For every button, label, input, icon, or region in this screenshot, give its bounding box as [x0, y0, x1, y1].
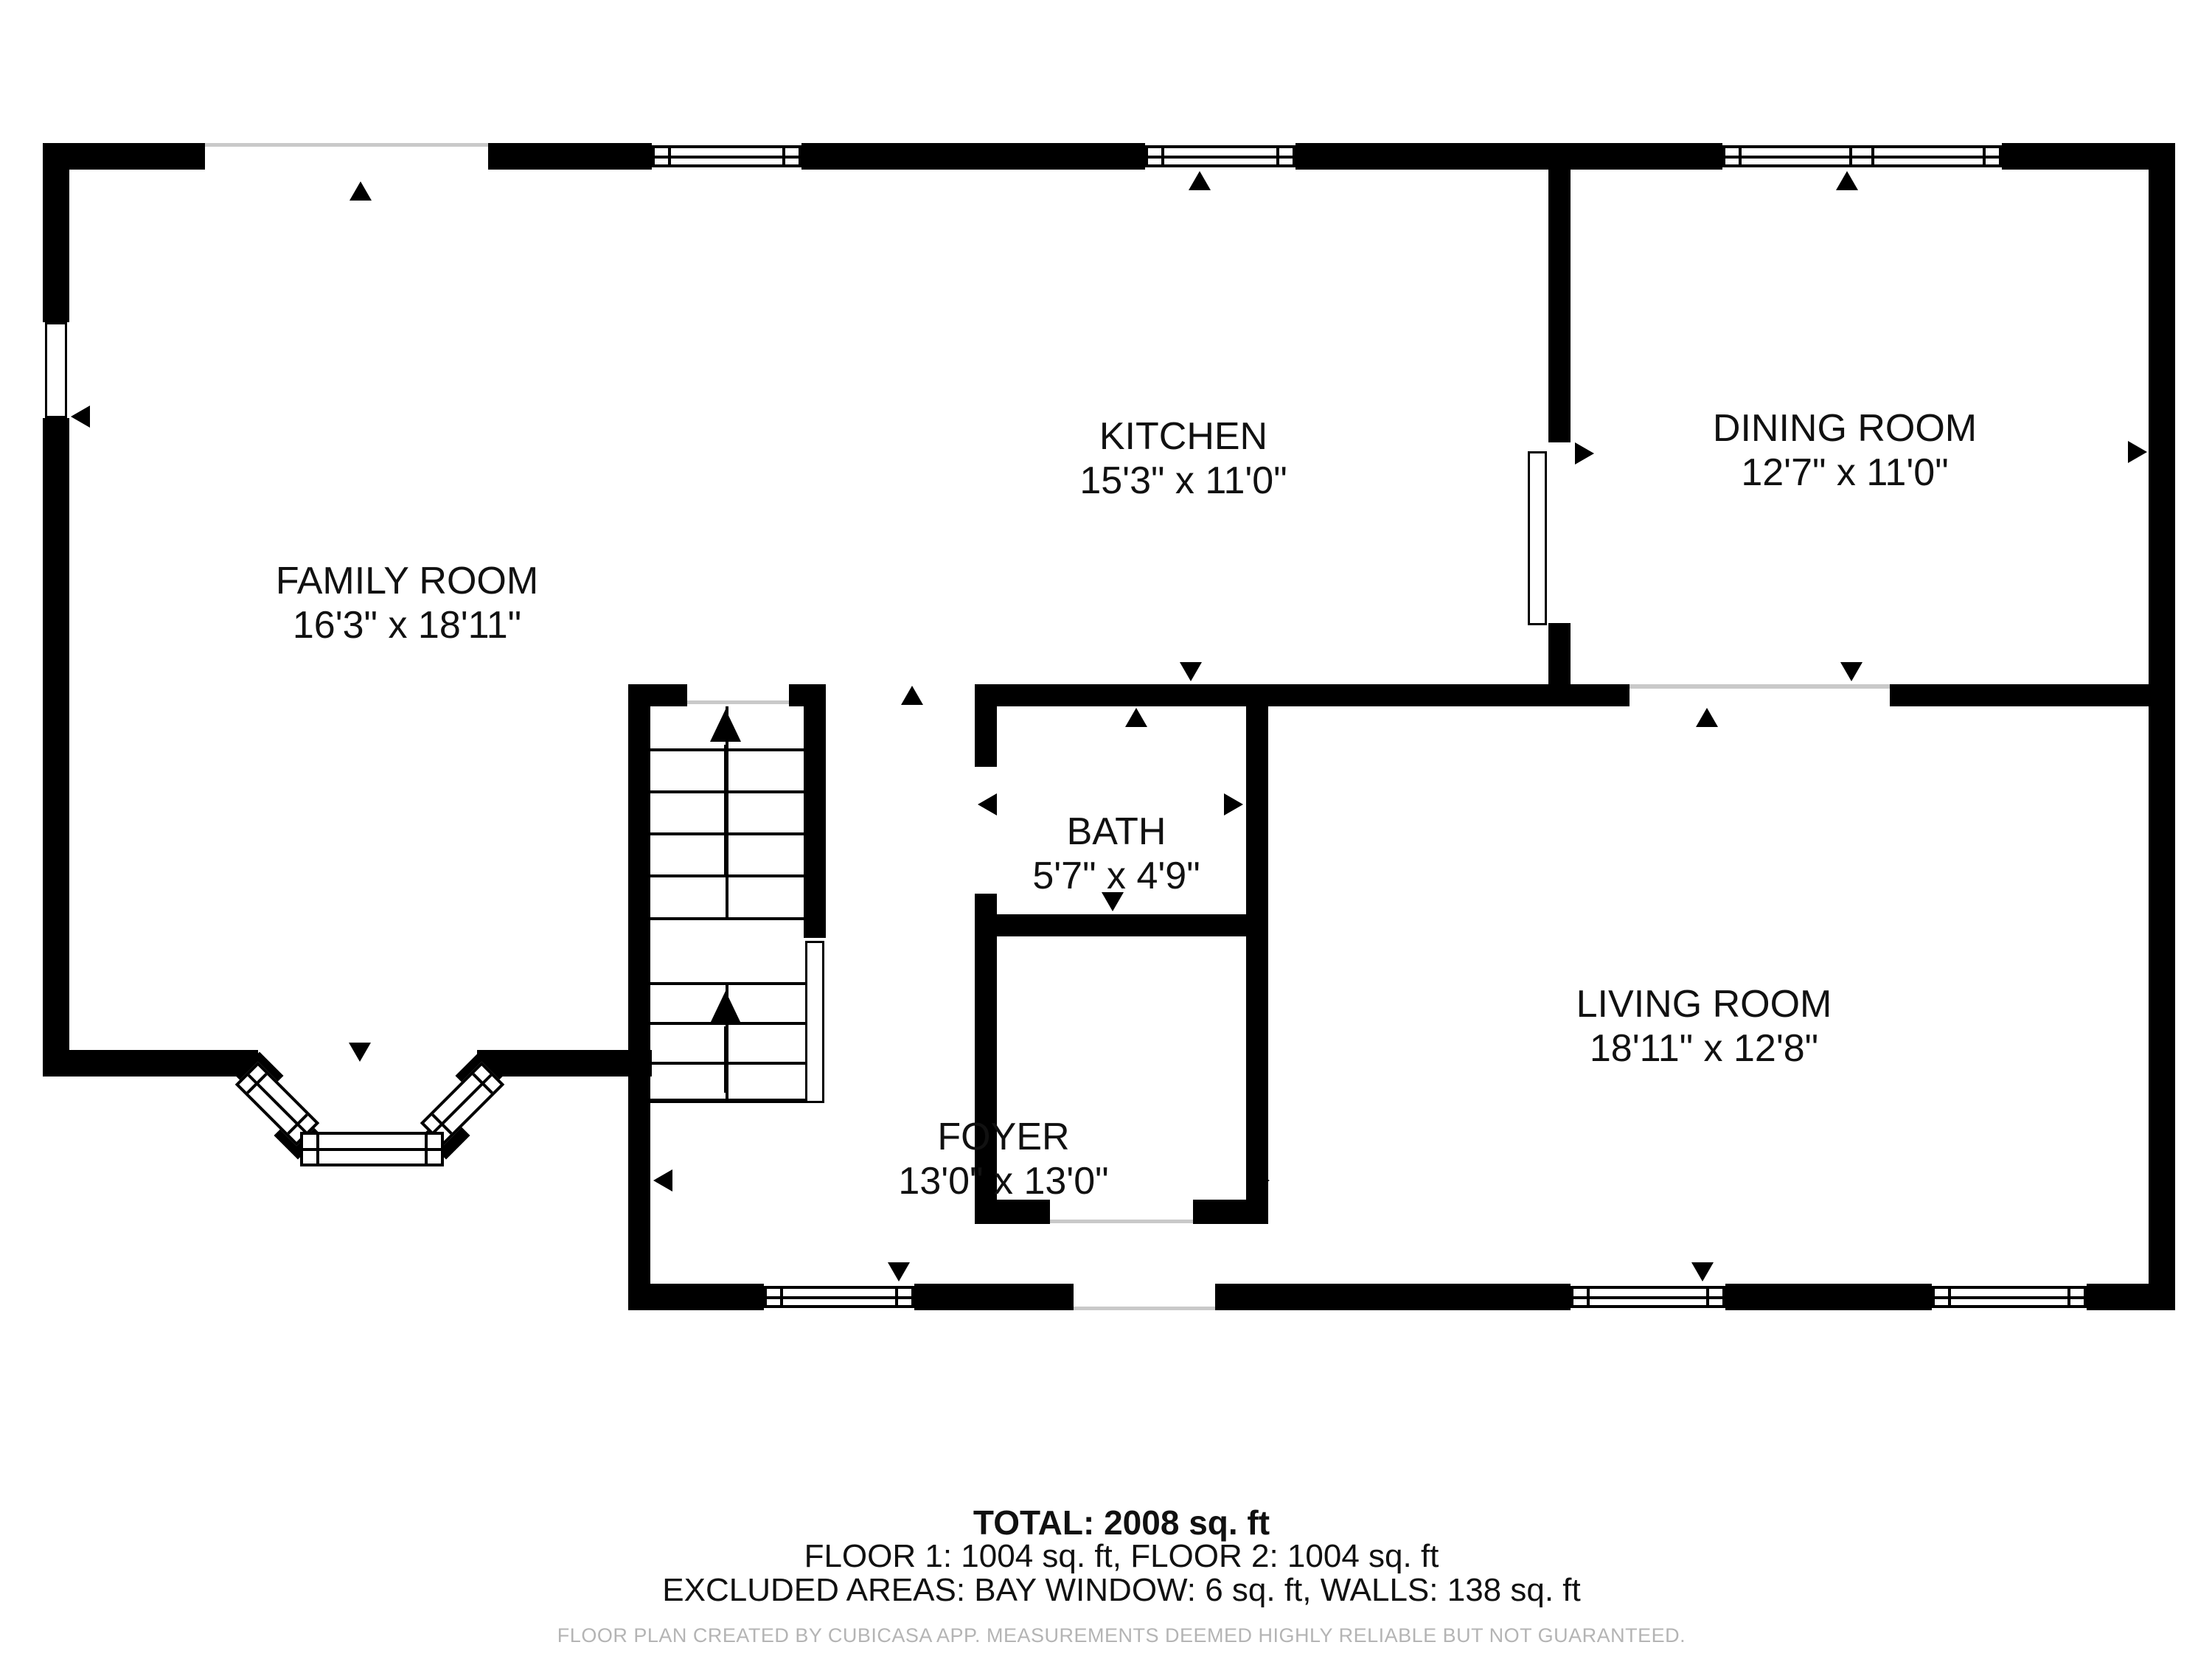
wall-bottom-1: [628, 1284, 764, 1310]
room-name: FOYER: [898, 1115, 1108, 1159]
opening-marker-foyer-left: [653, 1169, 672, 1192]
room-name: BATH: [1032, 810, 1200, 854]
total-area: TOTAL: 2008 sq. ft: [662, 1506, 1580, 1540]
room-dims: 12'7" x 11'0": [1713, 451, 1977, 495]
room-dims: 16'3" x 18'11": [276, 603, 538, 647]
door-marker-dining-door: [1575, 442, 1594, 465]
wall-top-4: [1295, 143, 1722, 170]
opening-marker-stairs-corridor: [901, 686, 923, 705]
room-name: KITCHEN: [1079, 414, 1287, 459]
room-dims: 5'7" x 4'9": [1032, 854, 1200, 898]
window-living-right: [1932, 1286, 2087, 1308]
window-living-left: [1571, 1286, 1725, 1308]
wall-kitchen-south: [975, 684, 1630, 706]
window-kitchen-left: [652, 145, 801, 167]
wall-bottom-5: [2087, 1284, 2175, 1310]
opening-marker-top-gap: [349, 181, 372, 201]
stairs-up-arrow-upper: [724, 745, 728, 876]
excluded-areas: EXCLUDED AREAS: BAY WINDOW: 6 sq. ft, WA…: [662, 1573, 1580, 1607]
stairs-up-arrow-lower: [724, 1026, 728, 1093]
window-marker-living: [1691, 1262, 1714, 1281]
bay-window-center-pane: [300, 1132, 444, 1166]
opening-marker-foyer-living: [1251, 1169, 1270, 1192]
floor-areas: FLOOR 1: 1004 sq. ft, FLOOR 2: 1004 sq. …: [662, 1540, 1580, 1573]
room-label-bath: BATH 5'7" x 4'9": [1032, 810, 1200, 898]
opening-marker-bath-top-inside: [1125, 708, 1147, 727]
window-marker-kitchen: [1189, 171, 1211, 190]
opening-marker-bath-top-outside: [1180, 662, 1202, 681]
window-dining: [1722, 145, 2002, 167]
opening-marker-divider-bottom: [1696, 708, 1718, 727]
wall-top-5: [2002, 143, 2175, 170]
wall-bottom-4: [1725, 1284, 1932, 1310]
wall-closet-bottom-right: [1193, 1200, 1268, 1224]
wall-kitchen-dining-1: [1548, 170, 1571, 442]
window-marker-bay: [349, 1043, 371, 1062]
wall-divider-right: [1890, 684, 2175, 706]
entry-door-threshold: [1074, 1307, 1215, 1310]
wall-right: [2149, 170, 2175, 1310]
room-label-dining-room: DINING ROOM 12'7" x 11'0": [1713, 406, 1977, 495]
floor-plan-canvas: FAMILY ROOM 16'3" x 18'11" KITCHEN 15'3"…: [0, 0, 2212, 1659]
wall-left-2: [43, 418, 69, 1077]
disclaimer-text: FLOOR PLAN CREATED BY CUBICASA APP. MEAS…: [557, 1624, 1686, 1647]
window-foyer: [764, 1286, 914, 1308]
door-marker-dining-right: [2128, 441, 2147, 463]
stairs-railing: [805, 941, 824, 1103]
room-name: DINING ROOM: [1713, 406, 1977, 451]
room-label-family-room: FAMILY ROOM 16'3" x 18'11": [276, 559, 538, 647]
wall-stairs-top-left: [628, 684, 687, 706]
room-dims: 15'3" x 11'0": [1079, 459, 1287, 503]
wall-kitchen-dining-2: [1548, 623, 1571, 706]
window-marker-dining: [1836, 171, 1858, 190]
door-leaf-dining: [1528, 451, 1547, 625]
wall-top-3: [801, 143, 1145, 170]
door-marker-bath-right: [1224, 793, 1243, 815]
wall-bath-bottom: [975, 914, 1268, 936]
wall-bottom-3: [1215, 1284, 1571, 1310]
window-marker-family-left: [71, 406, 90, 428]
opening-marker-divider-top: [1840, 662, 1863, 681]
room-label-living-room: LIVING ROOM 18'11" x 12'8": [1576, 982, 1832, 1071]
window-kitchen-right: [1145, 145, 1295, 167]
room-label-kitchen: KITCHEN 15'3" x 11'0": [1079, 414, 1287, 503]
wall-bath-left-1: [975, 706, 997, 767]
room-label-foyer: FOYER 13'0" x 13'0": [898, 1115, 1108, 1203]
window-marker-foyer: [888, 1262, 910, 1281]
room-name: LIVING ROOM: [1576, 982, 1832, 1026]
window-family-left-wall: [45, 322, 67, 418]
wall-left-1: [43, 143, 69, 322]
room-dims: 18'11" x 12'8": [1576, 1026, 1832, 1071]
wall-bottom-2: [914, 1284, 1074, 1310]
wall-family-bottom-left: [69, 1050, 258, 1077]
room-dims: 13'0" x 13'0": [898, 1159, 1108, 1203]
wall-bath-right: [1246, 706, 1268, 1224]
opening-threshold-closet: [1050, 1220, 1193, 1223]
wall-family-bottom-right: [477, 1050, 652, 1077]
room-name: FAMILY ROOM: [276, 559, 538, 603]
area-summary: TOTAL: 2008 sq. ft FLOOR 1: 1004 sq. ft,…: [662, 1506, 1580, 1607]
wall-stairs-right: [804, 684, 826, 938]
opening-threshold-divider: [1630, 684, 1890, 689]
wall-foyer-left: [628, 684, 650, 1310]
wall-top-2: [488, 143, 652, 170]
opening-threshold-stairs-top: [687, 700, 789, 704]
door-marker-bath-left: [978, 793, 997, 815]
opening-threshold-top: [205, 143, 488, 147]
